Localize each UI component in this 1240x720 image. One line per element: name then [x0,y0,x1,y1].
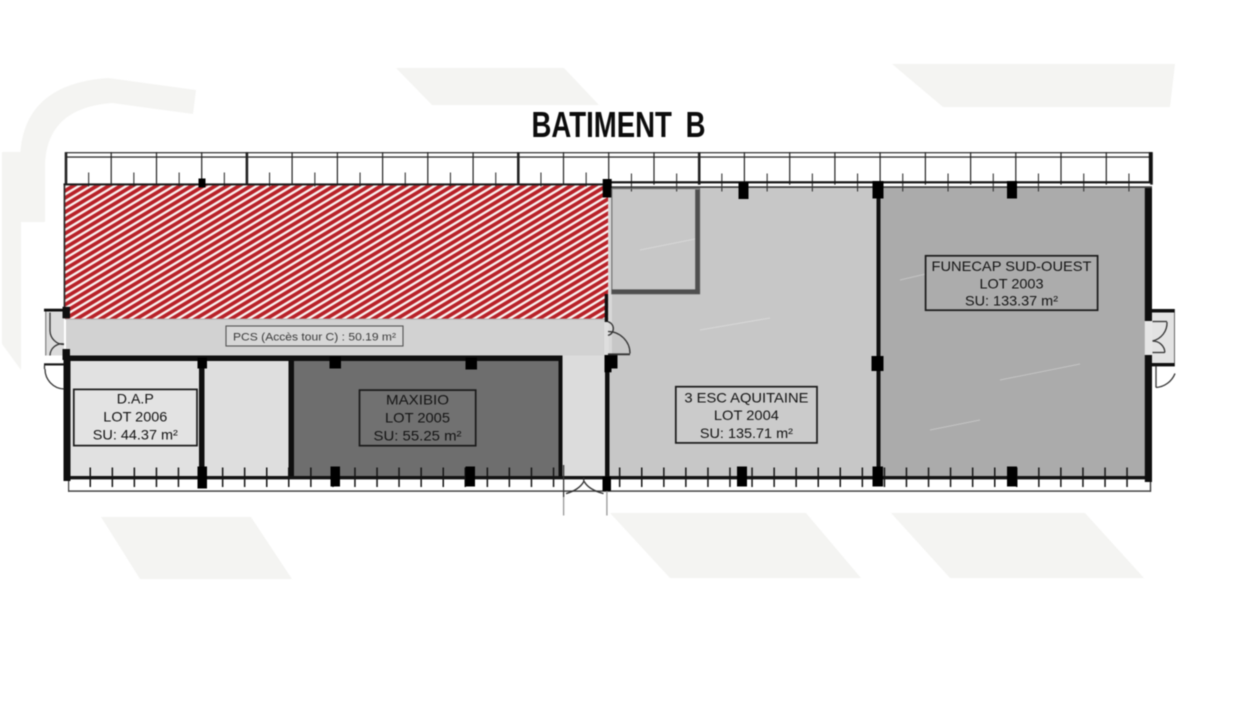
svg-text:D.A.P: D.A.P [117,392,154,407]
svg-text:SU: 44.37 m²: SU: 44.37 m² [93,428,178,443]
svg-text:LOT 2003: LOT 2003 [980,277,1044,292]
svg-text:3 ESC AQUITAINE: 3 ESC AQUITAINE [684,391,808,406]
svg-text:SU: 133.37 m²: SU: 133.37 m² [965,294,1058,309]
svg-text:LOT 2004: LOT 2004 [714,408,779,423]
svg-text:PCS (Accès tour C) : 50.19 m²: PCS (Accès tour C) : 50.19 m² [233,332,396,344]
svg-text:LOT 2006: LOT 2006 [103,410,167,425]
svg-text:FUNECAP SUD-OUEST: FUNECAP SUD-OUEST [932,259,1093,274]
svg-text:SU: 55.25 m²: SU: 55.25 m² [374,429,462,444]
svg-text:BATIMENT B: BATIMENT B [532,104,706,145]
svg-text:LOT 2005: LOT 2005 [385,411,450,426]
svg-text:MAXIBIO: MAXIBIO [386,393,449,408]
svg-text:SU: 135.71 m²: SU: 135.71 m² [700,426,793,441]
